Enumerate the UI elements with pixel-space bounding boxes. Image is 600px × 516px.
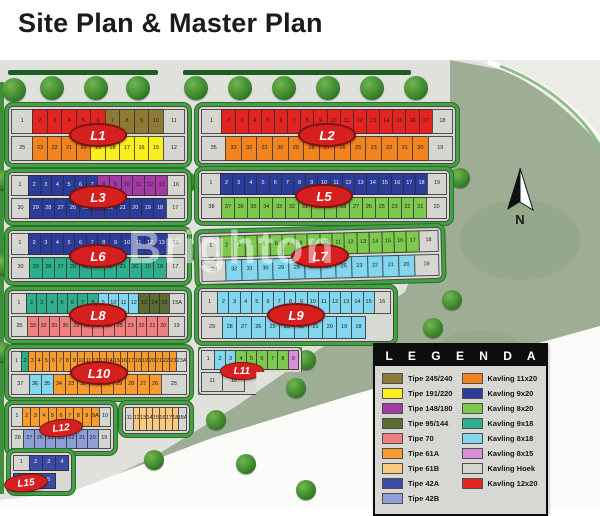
block-l7: 1234567891011121314151617183332313029282… bbox=[197, 227, 442, 285]
lot-l5-1: 1 bbox=[201, 173, 221, 195]
legend-label: Tipe 191/220 bbox=[408, 389, 452, 398]
lot-l1-11: 11 bbox=[163, 109, 185, 134]
lot-l1-2: 2 bbox=[32, 109, 48, 134]
lot-l3-17: 17 bbox=[166, 198, 185, 219]
lot-l2-6: 6 bbox=[274, 109, 288, 134]
lot-l6-30: 30 bbox=[11, 257, 30, 279]
lot-l1-12: 12 bbox=[163, 136, 185, 161]
lot-l2-14: 14 bbox=[379, 109, 393, 134]
legend-swatch-icon bbox=[382, 433, 403, 444]
block-l1: 12345678910112523222120191817161512L1 bbox=[8, 106, 188, 164]
lot-l2-17: 17 bbox=[419, 109, 433, 134]
lot-l8-19: 19 bbox=[168, 316, 185, 337]
lot-l12b-18A: 18A bbox=[178, 407, 187, 431]
lot-l2-3: 3 bbox=[235, 109, 249, 134]
block-badge-l5: L5 bbox=[295, 184, 353, 208]
legend-swatch-icon bbox=[462, 448, 483, 459]
lot-l11-1: 1 bbox=[201, 350, 215, 370]
lot-l5-34: 34 bbox=[259, 197, 273, 219]
lot-l6-29: 29 bbox=[29, 257, 42, 279]
tree-icon bbox=[144, 450, 164, 470]
block-badge-l8: L8 bbox=[69, 303, 127, 327]
lot-l3-29: 29 bbox=[29, 198, 42, 219]
tree-icon bbox=[236, 454, 256, 474]
lot-l2-32: 32 bbox=[241, 136, 258, 161]
lot-l11-11: 11 bbox=[201, 372, 223, 392]
lot-l5-19: 19 bbox=[427, 173, 447, 195]
lot-l2-35: 35 bbox=[201, 136, 226, 161]
lot-l2-16: 16 bbox=[405, 109, 419, 134]
lot-l5-23: 23 bbox=[388, 197, 402, 219]
legend-label: Tipe 42A bbox=[408, 479, 439, 488]
legend-swatch-icon bbox=[462, 463, 483, 474]
lot-l5-22: 22 bbox=[401, 197, 415, 219]
legend-label: Kavling 8x20 bbox=[488, 404, 534, 413]
block-badge-l10: L10 bbox=[70, 361, 128, 385]
legend-item: Tipe 191/220 bbox=[382, 388, 462, 399]
legend-item: Kavling 12x20 bbox=[462, 478, 542, 489]
lot-l5-38: 38 bbox=[201, 197, 222, 219]
lot-l2-31: 31 bbox=[256, 136, 273, 161]
legend-item: Tipe 245/240 bbox=[382, 373, 462, 384]
north-arrow-icon: N bbox=[498, 164, 542, 228]
block-badge-l6: L6 bbox=[69, 244, 127, 268]
lot-l12-19: 19 bbox=[98, 429, 111, 449]
legend-label: Tipe 245/240 bbox=[408, 374, 452, 383]
lot-l6-18: 18 bbox=[153, 257, 166, 279]
lot-l2-33: 33 bbox=[225, 136, 242, 161]
legend-label: Kavling 9x20 bbox=[488, 389, 534, 398]
block-l3: 1234567891011121316302928272625232221201… bbox=[8, 172, 188, 222]
legend-swatch-icon bbox=[382, 418, 403, 429]
lot-l9-27: 27 bbox=[236, 316, 251, 339]
lot-l7-23: 23 bbox=[351, 256, 368, 278]
legend-item: Kavling 8x15 bbox=[462, 448, 542, 459]
lot-l2-23: 23 bbox=[365, 136, 382, 161]
lot-l7-30: 30 bbox=[257, 258, 274, 280]
lot-l8-15A: 15A bbox=[169, 293, 185, 314]
lot-l15-2: 2 bbox=[29, 455, 43, 471]
block-l12: 1234567899A10282726252322212019L12 bbox=[8, 404, 114, 452]
block-badge-l2: L2 bbox=[298, 123, 356, 147]
lot-l7-32: 32 bbox=[226, 259, 243, 281]
lot-row: 1234 bbox=[13, 455, 69, 471]
lot-l12-10: 10 bbox=[99, 407, 111, 427]
lot-l7-21: 21 bbox=[382, 255, 399, 277]
legend-item: Kavling 11x20 bbox=[462, 373, 542, 384]
lot-l9-1: 1 bbox=[201, 291, 218, 314]
lot-l1-23: 23 bbox=[32, 136, 48, 161]
lot-l5-33: 33 bbox=[272, 197, 286, 219]
legend-label: Tipe 70 bbox=[408, 434, 434, 443]
lot-l7-29: 29 bbox=[273, 258, 290, 280]
lot-l9-18: 18 bbox=[351, 316, 366, 339]
block-l5: 1234567891011121314151617181938373635343… bbox=[198, 170, 450, 222]
lot-l1-9: 9 bbox=[134, 109, 150, 134]
lot-l2-2: 2 bbox=[221, 109, 235, 134]
lot-l7-18: 18 bbox=[418, 230, 439, 253]
lot-l2-12: 12 bbox=[353, 109, 367, 134]
lot-l15-1: 1 bbox=[13, 455, 30, 471]
lot-l3-16: 16 bbox=[167, 175, 185, 196]
legend-swatch-icon bbox=[462, 478, 483, 489]
block-l6: 1234567891011121316302928272625232221201… bbox=[8, 230, 188, 282]
lot-l3-27: 27 bbox=[54, 198, 67, 219]
legend: L E G E N D A Tipe 245/240Tipe 191/220Ti… bbox=[373, 343, 548, 516]
lot-l7-1: 1 bbox=[200, 236, 221, 259]
lot-l6-27: 27 bbox=[54, 257, 67, 279]
north-label: N bbox=[515, 212, 524, 227]
lot-l11-9: 9 bbox=[288, 350, 299, 370]
legend-item: Kavling 8x20 bbox=[462, 403, 542, 414]
lot-l7-22: 22 bbox=[367, 255, 384, 277]
lot-l6-16: 16 bbox=[167, 233, 185, 255]
tree-icon bbox=[206, 410, 226, 430]
lot-l10-37: 37 bbox=[11, 374, 30, 395]
lot-l5-35: 35 bbox=[247, 197, 261, 219]
legend-swatch-icon bbox=[382, 388, 403, 399]
block-badge-l1: L1 bbox=[69, 123, 127, 147]
lot-l6-20: 20 bbox=[129, 257, 142, 279]
lot-empty bbox=[55, 473, 69, 489]
tree-icon bbox=[228, 76, 252, 100]
legend-item: Tipe 42A bbox=[382, 478, 462, 489]
lot-l3-28: 28 bbox=[42, 198, 55, 219]
legend-label: Tipe 148/180 bbox=[408, 404, 452, 413]
legend-column-tipe: Tipe 245/240Tipe 191/220Tipe 148/180Tipe… bbox=[382, 373, 462, 508]
tree-icon bbox=[442, 290, 462, 310]
tree-icon bbox=[272, 76, 296, 100]
block-badge-l9: L9 bbox=[267, 303, 325, 327]
lot-l9-20: 20 bbox=[322, 316, 337, 339]
lot-l8-35: 35 bbox=[11, 316, 28, 337]
tree-icon bbox=[360, 76, 384, 100]
lot-l2-4: 4 bbox=[248, 109, 262, 134]
block-l9: 1234567891011121314151629282726252322212… bbox=[198, 288, 394, 342]
legend-label: Kavling 8x18 bbox=[488, 434, 534, 443]
legend-body: Tipe 245/240Tipe 191/220Tipe 148/180Tipe… bbox=[375, 366, 546, 514]
page-title: Site Plan & Master Plan bbox=[18, 8, 323, 39]
legend-swatch-icon bbox=[462, 388, 483, 399]
lot-l7-33: 33 bbox=[201, 259, 227, 282]
hedge bbox=[8, 70, 158, 75]
block-badge-l3: L3 bbox=[69, 185, 127, 209]
lot-l2-30: 30 bbox=[272, 136, 289, 161]
lot-l6-28: 28 bbox=[42, 257, 55, 279]
lot-l7-31: 31 bbox=[241, 259, 258, 281]
legend-swatch-icon bbox=[462, 403, 483, 414]
block-l2: 1234567891011121314151617183533323130292… bbox=[198, 106, 456, 164]
lot-l9-26: 26 bbox=[251, 316, 266, 339]
legend-item: Kavling 9x18 bbox=[462, 418, 542, 429]
legend-title: L E G E N D A bbox=[375, 345, 546, 366]
lot-l1-1: 1 bbox=[11, 109, 33, 134]
lot-l9-19: 19 bbox=[336, 316, 351, 339]
legend-item: Kavling 9x20 bbox=[462, 388, 542, 399]
lot-l15-3: 3 bbox=[42, 455, 56, 471]
legend-swatch-icon bbox=[462, 418, 483, 429]
lot-l1-16: 16 bbox=[134, 136, 150, 161]
lot-l5-37: 37 bbox=[221, 197, 235, 219]
lot-l3-30: 30 bbox=[11, 198, 30, 219]
legend-swatch-icon bbox=[382, 463, 403, 474]
legend-swatch-icon bbox=[462, 373, 483, 384]
lot-l9-16: 16 bbox=[374, 291, 391, 314]
legend-item: Kavling Hoek bbox=[462, 463, 542, 474]
legend-column-kavling: Kavling 11x20Kavling 9x20Kavling 8x20Kav… bbox=[462, 373, 542, 508]
block-l12b: 111213141516171818A bbox=[122, 404, 190, 434]
legend-item: Tipe 70 bbox=[382, 433, 462, 444]
legend-item: Tipe 42B bbox=[382, 493, 462, 504]
lot-l2-1: 1 bbox=[201, 109, 222, 134]
legend-label: Kavling 9x18 bbox=[488, 419, 534, 428]
lot-row: 111213141516171818A bbox=[125, 407, 187, 431]
lot-l3-19: 19 bbox=[141, 198, 154, 219]
lot-l1-3: 3 bbox=[47, 109, 63, 134]
legend-item: Tipe 148/180 bbox=[382, 403, 462, 414]
lot-l6-17: 17 bbox=[166, 257, 185, 279]
lot-l9-28: 28 bbox=[222, 316, 237, 339]
lot-l1-22: 22 bbox=[47, 136, 63, 161]
curb bbox=[0, 82, 4, 494]
tree-icon bbox=[84, 76, 108, 100]
lot-l7-20: 20 bbox=[398, 255, 415, 277]
tree-icon bbox=[40, 76, 64, 100]
tree-icon bbox=[423, 318, 443, 338]
legend-swatch-icon bbox=[382, 448, 403, 459]
legend-label: Tipe 95/144 bbox=[408, 419, 448, 428]
tree-icon bbox=[286, 378, 306, 398]
lot-l1-10: 10 bbox=[148, 109, 164, 134]
tree-icon bbox=[404, 76, 428, 100]
legend-label: Tipe 61A bbox=[408, 449, 439, 458]
lot-l2-5: 5 bbox=[261, 109, 275, 134]
site-plan-map: 12345678910112523222120191817161512L1123… bbox=[0, 60, 600, 507]
lot-l3-1: 1 bbox=[11, 175, 29, 196]
legend-item: Tipe 95/144 bbox=[382, 418, 462, 429]
legend-label: Kavling 12x20 bbox=[488, 479, 538, 488]
lot-l6-1: 1 bbox=[11, 233, 29, 255]
legend-item: Tipe 61A bbox=[382, 448, 462, 459]
lot-l5-26: 26 bbox=[362, 197, 376, 219]
lot-l2-13: 13 bbox=[366, 109, 380, 134]
tree-icon bbox=[316, 76, 340, 100]
tree-icon bbox=[450, 168, 470, 188]
legend-swatch-icon bbox=[382, 478, 403, 489]
hedge bbox=[183, 70, 411, 75]
lot-l10-25: 25 bbox=[161, 374, 187, 395]
lot-l2-21: 21 bbox=[397, 136, 414, 161]
lot-l9-29: 29 bbox=[201, 316, 223, 339]
lot-l10-23A: 23A bbox=[176, 351, 187, 372]
lot-l12-28: 28 bbox=[11, 429, 24, 449]
tree-icon bbox=[2, 78, 26, 102]
legend-label: Kavling 11x20 bbox=[488, 374, 538, 383]
lot-l15-4: 4 bbox=[55, 455, 69, 471]
legend-swatch-icon bbox=[462, 433, 483, 444]
lot-l6-19: 19 bbox=[141, 257, 154, 279]
lot-l1-15: 15 bbox=[148, 136, 164, 161]
lot-l7-19: 19 bbox=[414, 254, 440, 277]
block-l10: 123456789101112131415161718192021222323A… bbox=[8, 348, 190, 398]
legend-swatch-icon bbox=[382, 493, 403, 504]
lot-l5-21: 21 bbox=[413, 197, 427, 219]
lot-l2-15: 15 bbox=[392, 109, 406, 134]
lot-l3-18: 18 bbox=[153, 198, 166, 219]
lot-l3-20: 20 bbox=[129, 198, 142, 219]
tree-icon bbox=[296, 480, 316, 500]
legend-label: Kavling Hoek bbox=[488, 464, 536, 473]
lot-l5-25: 25 bbox=[375, 197, 389, 219]
lot-l1-25: 25 bbox=[11, 136, 33, 161]
block-l15: 1234765L15 bbox=[10, 452, 72, 492]
legend-swatch-icon bbox=[382, 373, 403, 384]
tree-icon bbox=[184, 76, 208, 100]
block-l8: 12345678910111213141515A3533323130292827… bbox=[8, 290, 188, 340]
lot-l5-36: 36 bbox=[234, 197, 248, 219]
lot-l2-22: 22 bbox=[381, 136, 398, 161]
lot-l8-1: 1 bbox=[11, 293, 27, 314]
block-badge-l15: L15 bbox=[3, 471, 49, 494]
lot-l2-20: 20 bbox=[412, 136, 429, 161]
tree-icon bbox=[126, 76, 150, 100]
lot-l5-20: 20 bbox=[426, 197, 447, 219]
legend-swatch-icon bbox=[382, 403, 403, 414]
legend-item: Kavling 8x18 bbox=[462, 433, 542, 444]
lot-empty bbox=[365, 316, 391, 339]
legend-label: Tipe 61B bbox=[408, 464, 439, 473]
legend-label: Kavling 8x15 bbox=[488, 449, 534, 458]
lot-l2-18: 18 bbox=[432, 109, 453, 134]
lot-l2-19: 19 bbox=[428, 136, 453, 161]
legend-item: Tipe 61B bbox=[382, 463, 462, 474]
legend-label: Tipe 42B bbox=[408, 494, 439, 503]
lot-l5-27: 27 bbox=[349, 197, 363, 219]
